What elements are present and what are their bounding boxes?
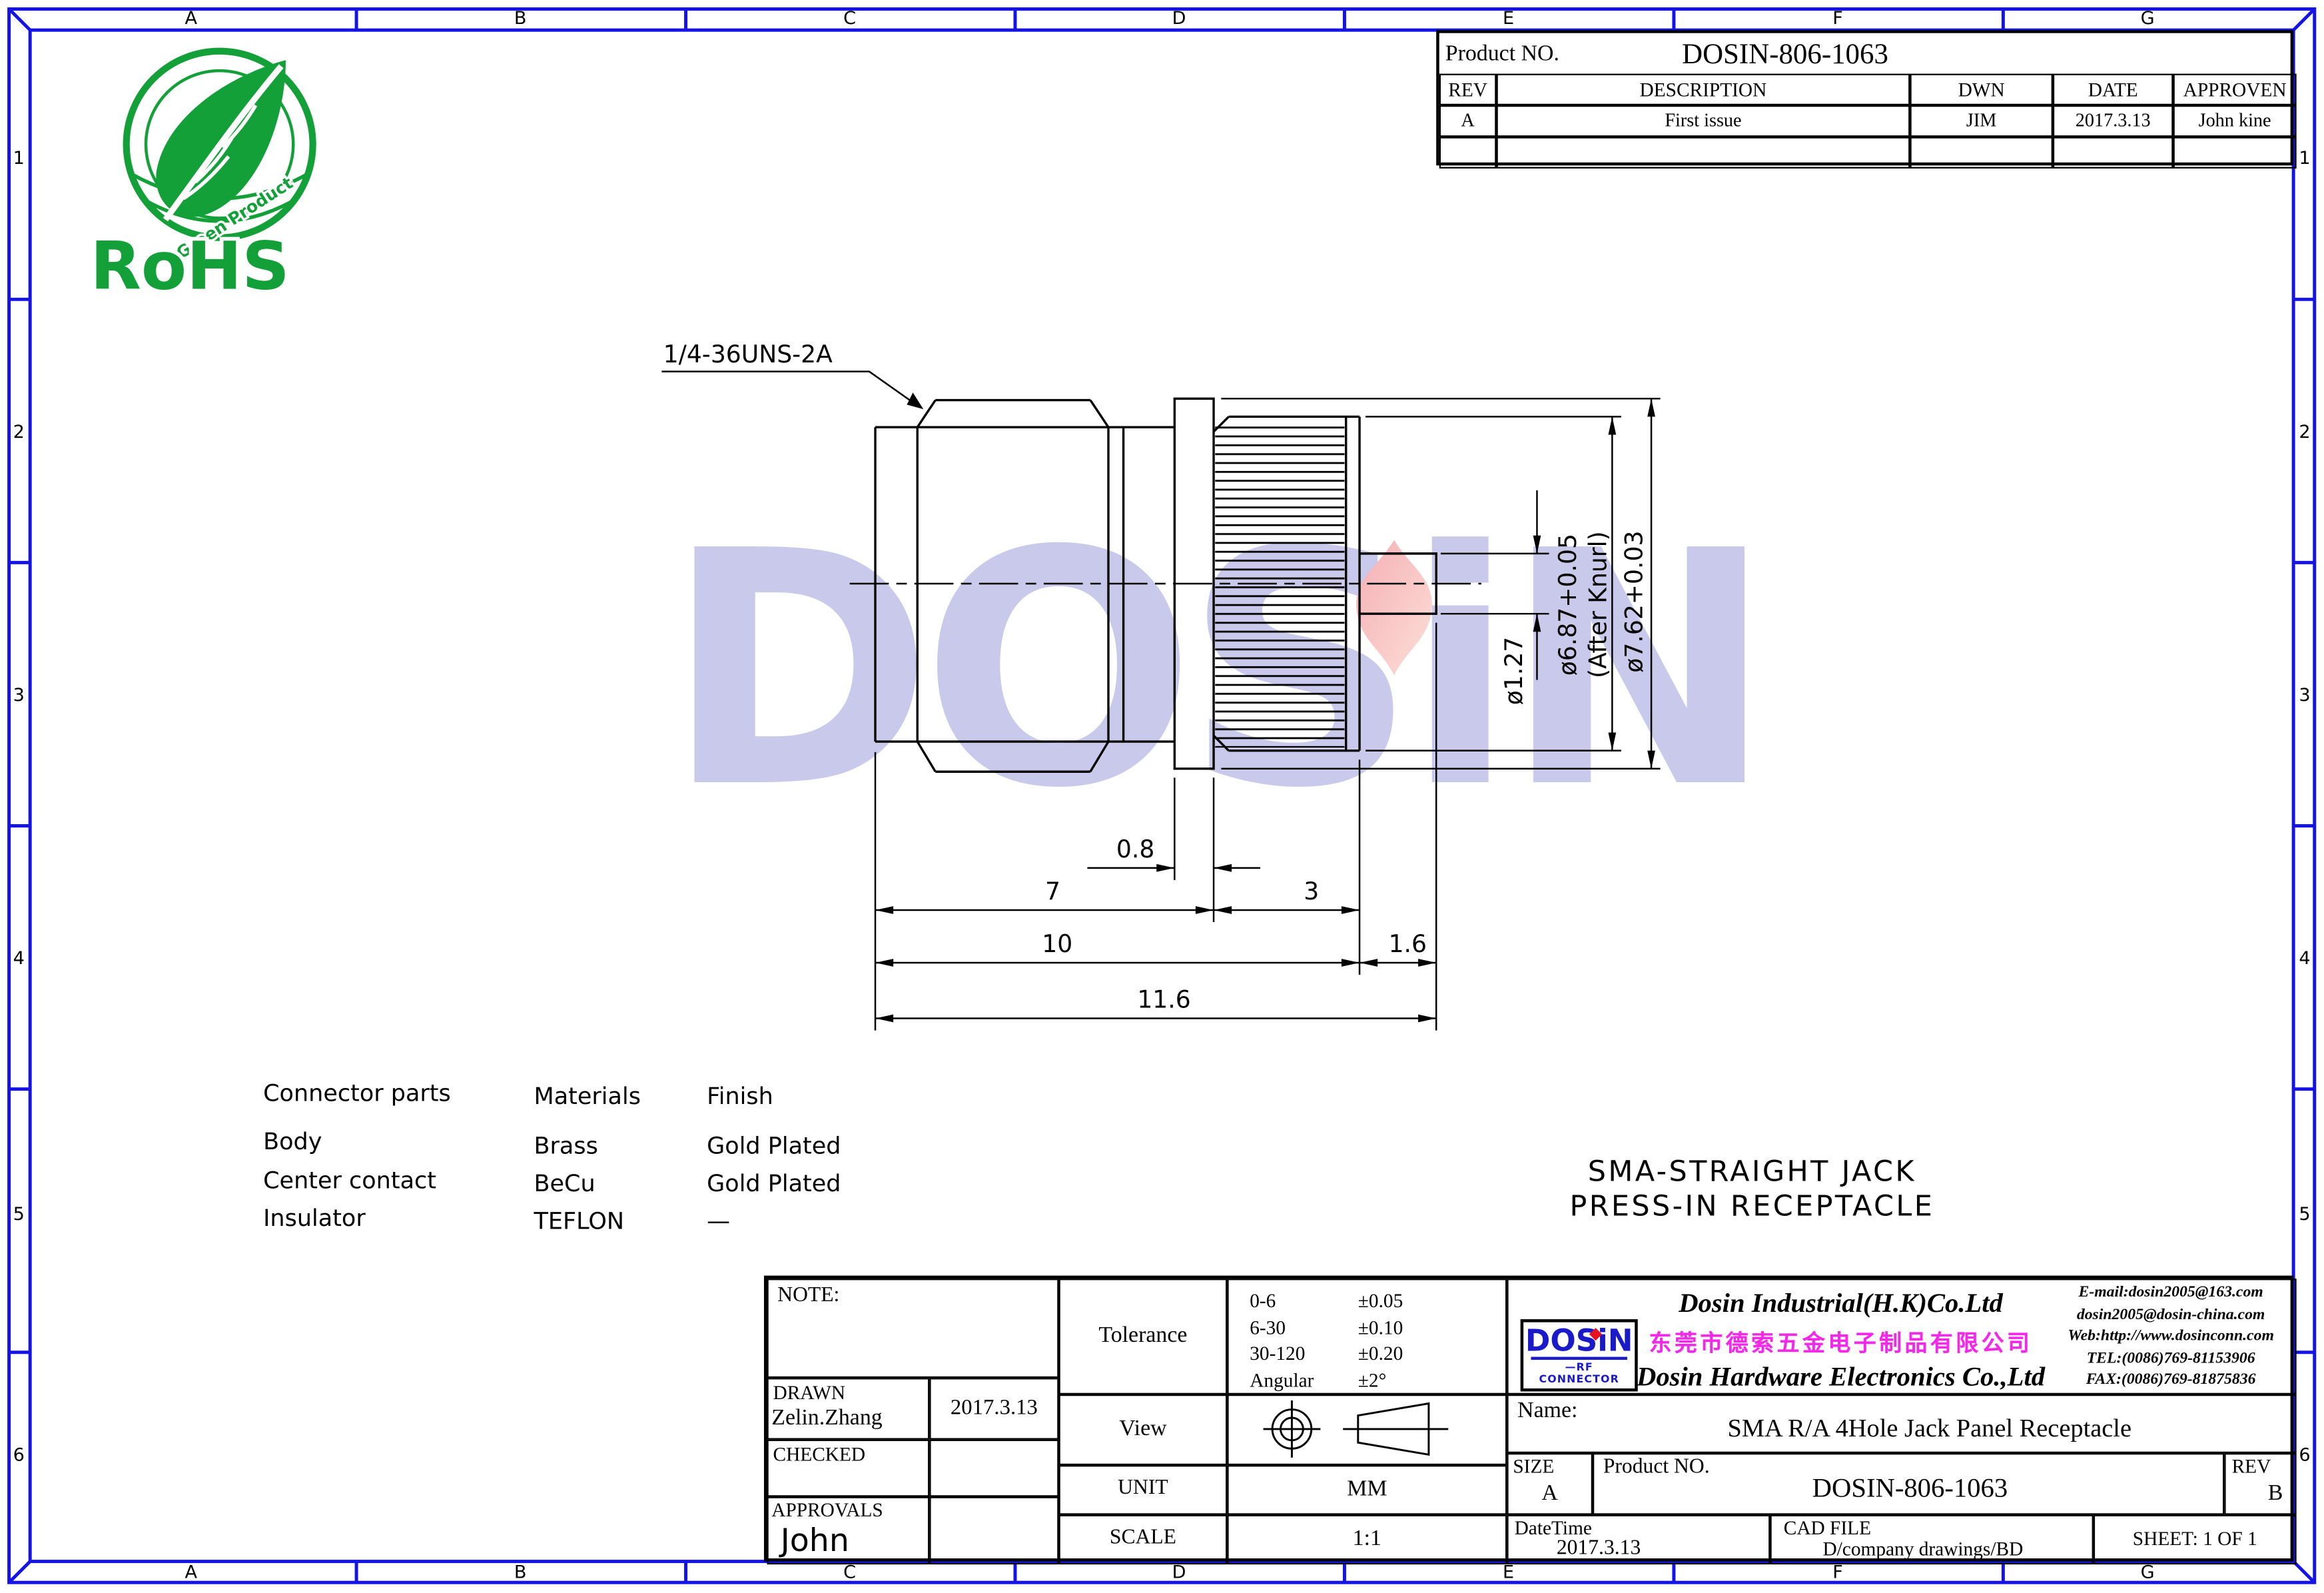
dosin-logo-text: DOSiN — [1523, 1324, 1635, 1357]
dia-knurl: ø6.87+0.05 — [1553, 534, 1582, 676]
checked-cell: CHECKED — [767, 1440, 929, 1497]
material-finish: Gold Plated — [707, 1133, 841, 1160]
rev-a: A — [1441, 107, 1495, 135]
unit-value: MM — [1229, 1466, 1505, 1512]
grid-col-top: G — [2114, 7, 2180, 30]
unit-label-cell: UNIT — [1058, 1465, 1227, 1515]
dia-knurl-note: (After Knurl) — [1583, 531, 1612, 678]
grid-row-left: 6 — [7, 1440, 30, 1470]
product-title: SMA-STRAIGHT JACK PRESS-IN RECEPTACLE — [1527, 1155, 1978, 1225]
product-cell: Product NO. DOSIN-806-1063 — [1593, 1453, 2224, 1515]
unit-value-cell: MM — [1227, 1465, 1507, 1515]
rohs-title: RoHS — [90, 228, 289, 298]
dim-0-8: 0.8 — [1116, 835, 1154, 863]
grid-row-right: 2 — [2293, 416, 2316, 446]
cadfile-value: D/company drawings/BD — [1822, 1537, 2023, 1561]
name-cell: Name: SMA R/A 4Hole Jack Panel Receptacl… — [1507, 1394, 2296, 1453]
approvals-cell: APPROVALS John — [767, 1497, 929, 1565]
material-material: BeCu — [534, 1171, 595, 1198]
company-web: Web:http://www.dosinconn.com — [2047, 1327, 2295, 1349]
connector-outline — [850, 398, 1481, 772]
note-label: NOTE: — [777, 1285, 839, 1309]
company-cell: DOSiN —RF CONNECTOR Dosin Industrial(H.K… — [1507, 1279, 2296, 1394]
grid-row-right: 4 — [2293, 943, 2316, 973]
materials-table: Connector parts Materials Finish Body Br… — [263, 1080, 895, 1245]
size-cell: SIZE A — [1507, 1453, 1593, 1515]
grid-col-top: E — [1475, 7, 1541, 30]
tolerance-values-cell: 0-6±0.05 6-30±0.10 30-120±0.20 Angular±2… — [1227, 1279, 1507, 1394]
dim-3: 3 — [1304, 877, 1319, 905]
view-label-cell: View — [1058, 1394, 1227, 1465]
tb-product-no: DOSIN-806-1063 — [1729, 1472, 2090, 1504]
grid-row-left: 3 — [7, 680, 30, 710]
scale-value: 1:1 — [1229, 1516, 1505, 1562]
grid-col-bottom: A — [158, 1562, 224, 1584]
company-name-cn: 东莞市德索五金电子制品有限公司 — [1629, 1327, 2053, 1358]
material-material: TEFLON — [534, 1208, 625, 1235]
drawn-label: DRAWN — [773, 1381, 846, 1405]
material-finish: — — [707, 1208, 730, 1235]
company-fax: FAX:(0086)769-81875836 — [2047, 1371, 2295, 1393]
drawing-sheet: DOSiN — [0, 0, 2323, 1593]
rev-date: 2017.3.13 — [2054, 107, 2171, 135]
product-title-line1: SMA-STRAIGHT JACK — [1527, 1155, 1978, 1190]
company-name-en2: Dosin Hardware Electronics Co.,Ltd — [1636, 1361, 2045, 1392]
knurl-hatch — [1215, 420, 1344, 748]
rohs-logo: Green Product RoHS — [87, 36, 331, 298]
company-email2: dosin2005@dosin-china.com — [2047, 1305, 2295, 1327]
grid-col-bottom: E — [1475, 1562, 1541, 1584]
material-part: Body — [263, 1128, 322, 1155]
sheet-value: SHEET: 1 OF 1 — [2095, 1516, 2295, 1562]
col-dwn: DWN — [1912, 75, 2052, 104]
projection-view-icon — [1229, 1396, 1504, 1462]
grid-col-top: C — [817, 7, 883, 30]
col-description: DESCRIPTION — [1498, 75, 1908, 104]
dimension-texts: 1/4-36UNS-2A 0.8 7 3 10 1.6 11.6 ø1.27 ø… — [663, 340, 1649, 1014]
grid-col-bottom: D — [1146, 1562, 1212, 1584]
rev-cell: REV B — [2224, 1453, 2296, 1515]
datetime-cell: DateTime 2017.3.13 — [1507, 1515, 1770, 1565]
title-block: NOTE: DRAWN Zelin.Zhang 2017.3.13 CHECKE… — [764, 1276, 2293, 1562]
tol-range: Angular — [1250, 1366, 1358, 1393]
size-value: A — [1509, 1482, 1591, 1507]
rev-description: First issue — [1498, 107, 1908, 135]
checked-label: CHECKED — [773, 1442, 866, 1466]
drawn-cell: DRAWN Zelin.Zhang — [767, 1378, 929, 1440]
drawn-name: Zelin.Zhang — [771, 1406, 882, 1432]
tol-value: ±2° — [1358, 1368, 1387, 1390]
rev-dwn: JIM — [1912, 107, 2052, 135]
grid-col-bottom: B — [488, 1562, 554, 1584]
company-tel: TEL:(0086)769-81153906 — [2047, 1349, 2295, 1371]
approvals-name: John — [781, 1522, 849, 1558]
dosin-logo-subtext: —RF CONNECTOR — [1531, 1357, 1627, 1386]
grid-row-right: 5 — [2293, 1199, 2316, 1229]
approvals-label: APPROVALS — [771, 1498, 883, 1522]
company-contacts: E-mail:dosin2005@163.com dosin2005@dosin… — [2047, 1283, 2295, 1393]
dim-11-6: 11.6 — [1137, 985, 1190, 1014]
grid-row-left: 2 — [7, 416, 30, 446]
grid-row-right: 3 — [2293, 680, 2316, 710]
tol-value: ±0.20 — [1358, 1342, 1403, 1364]
scale-value-cell: 1:1 — [1227, 1515, 1507, 1565]
grid-col-bottom: G — [2114, 1562, 2180, 1584]
grid-row-left: 4 — [7, 943, 30, 973]
revision-table: Product NO. DOSIN-806-1063 REV DESCRIPTI… — [1436, 30, 2293, 165]
grid-col-top: D — [1146, 7, 1212, 30]
tol-range: 0-6 — [1250, 1288, 1358, 1315]
company-name-en1: Dosin Industrial(H.K)Co.Ltd — [1636, 1288, 2045, 1319]
product-no-value: DOSIN-806-1063 — [1612, 39, 1958, 73]
grid-col-bottom: C — [817, 1562, 883, 1584]
tol-value: ±0.10 — [1358, 1315, 1403, 1338]
dosin-logo: DOSiN —RF CONNECTOR — [1521, 1319, 1638, 1391]
view-label: View — [1060, 1396, 1226, 1462]
grid-col-top: B — [488, 7, 554, 30]
company-email1: E-mail:dosin2005@163.com — [2047, 1283, 2295, 1305]
grid-row-left: 5 — [7, 1199, 30, 1229]
col-approven: APPROVEN — [2175, 75, 2295, 104]
view-symbol-cell — [1227, 1394, 1507, 1465]
material-part: Insulator — [263, 1205, 366, 1232]
tb-product-label: Product NO. — [1603, 1456, 1710, 1480]
grid-col-bottom: F — [1804, 1562, 1870, 1584]
scale-label: SCALE — [1060, 1516, 1226, 1562]
grid-row-left: 1 — [7, 143, 30, 173]
drawn-date: 2017.3.13 — [931, 1379, 1058, 1436]
datetime-value: 2017.3.13 — [1557, 1537, 1641, 1561]
size-label: SIZE — [1513, 1454, 1554, 1478]
materials-header-materials: Materials — [534, 1083, 641, 1111]
materials-header-parts: Connector parts — [263, 1080, 451, 1107]
material-finish: Gold Plated — [707, 1171, 841, 1198]
rev-value: B — [2226, 1482, 2295, 1507]
dia-flange: ø7.62+0.03 — [1620, 531, 1649, 673]
drawn-date-cell: 2017.3.13 — [929, 1378, 1058, 1440]
col-rev: REV — [1441, 75, 1495, 104]
sheet-cell: SHEET: 1 OF 1 — [2094, 1515, 2297, 1565]
grid-row-right: 1 — [2293, 143, 2316, 173]
tol-range: 30-120 — [1250, 1340, 1358, 1367]
dim-10: 10 — [1042, 929, 1072, 958]
dia-pin: ø1.27 — [1499, 637, 1528, 706]
note-cell: NOTE: — [767, 1279, 1058, 1378]
product-no-label: Product NO. — [1445, 42, 1559, 67]
col-date: DATE — [2054, 75, 2171, 104]
material-material: Brass — [534, 1133, 598, 1160]
grid-col-top: A — [158, 7, 224, 30]
unit-label: UNIT — [1060, 1466, 1226, 1512]
rev-label: REV — [2232, 1454, 2271, 1478]
dim-1-6: 1.6 — [1389, 929, 1427, 958]
material-part: Center contact — [263, 1167, 436, 1195]
cadfile-cell: CAD FILE D/company drawings/BD — [1770, 1515, 2093, 1565]
tol-range: 6-30 — [1250, 1314, 1358, 1340]
product-title-line2: PRESS-IN RECEPTACLE — [1527, 1190, 1978, 1225]
tol-value: ±0.05 — [1358, 1289, 1403, 1312]
grid-col-top: F — [1804, 7, 1870, 30]
materials-header-finish: Finish — [707, 1083, 773, 1111]
grid-row-right: 6 — [2293, 1440, 2316, 1470]
tolerance-label: Tolerance — [1060, 1280, 1226, 1391]
dim-7: 7 — [1045, 877, 1060, 905]
thread-callout: 1/4-36UNS-2A — [663, 340, 833, 368]
tolerance-label-cell: Tolerance — [1058, 1279, 1227, 1394]
rev-approven: John kine — [2175, 107, 2295, 135]
name-value: SMA R/A 4Hole Jack Panel Receptacle — [1569, 1414, 2291, 1444]
scale-label-cell: SCALE — [1058, 1515, 1227, 1565]
